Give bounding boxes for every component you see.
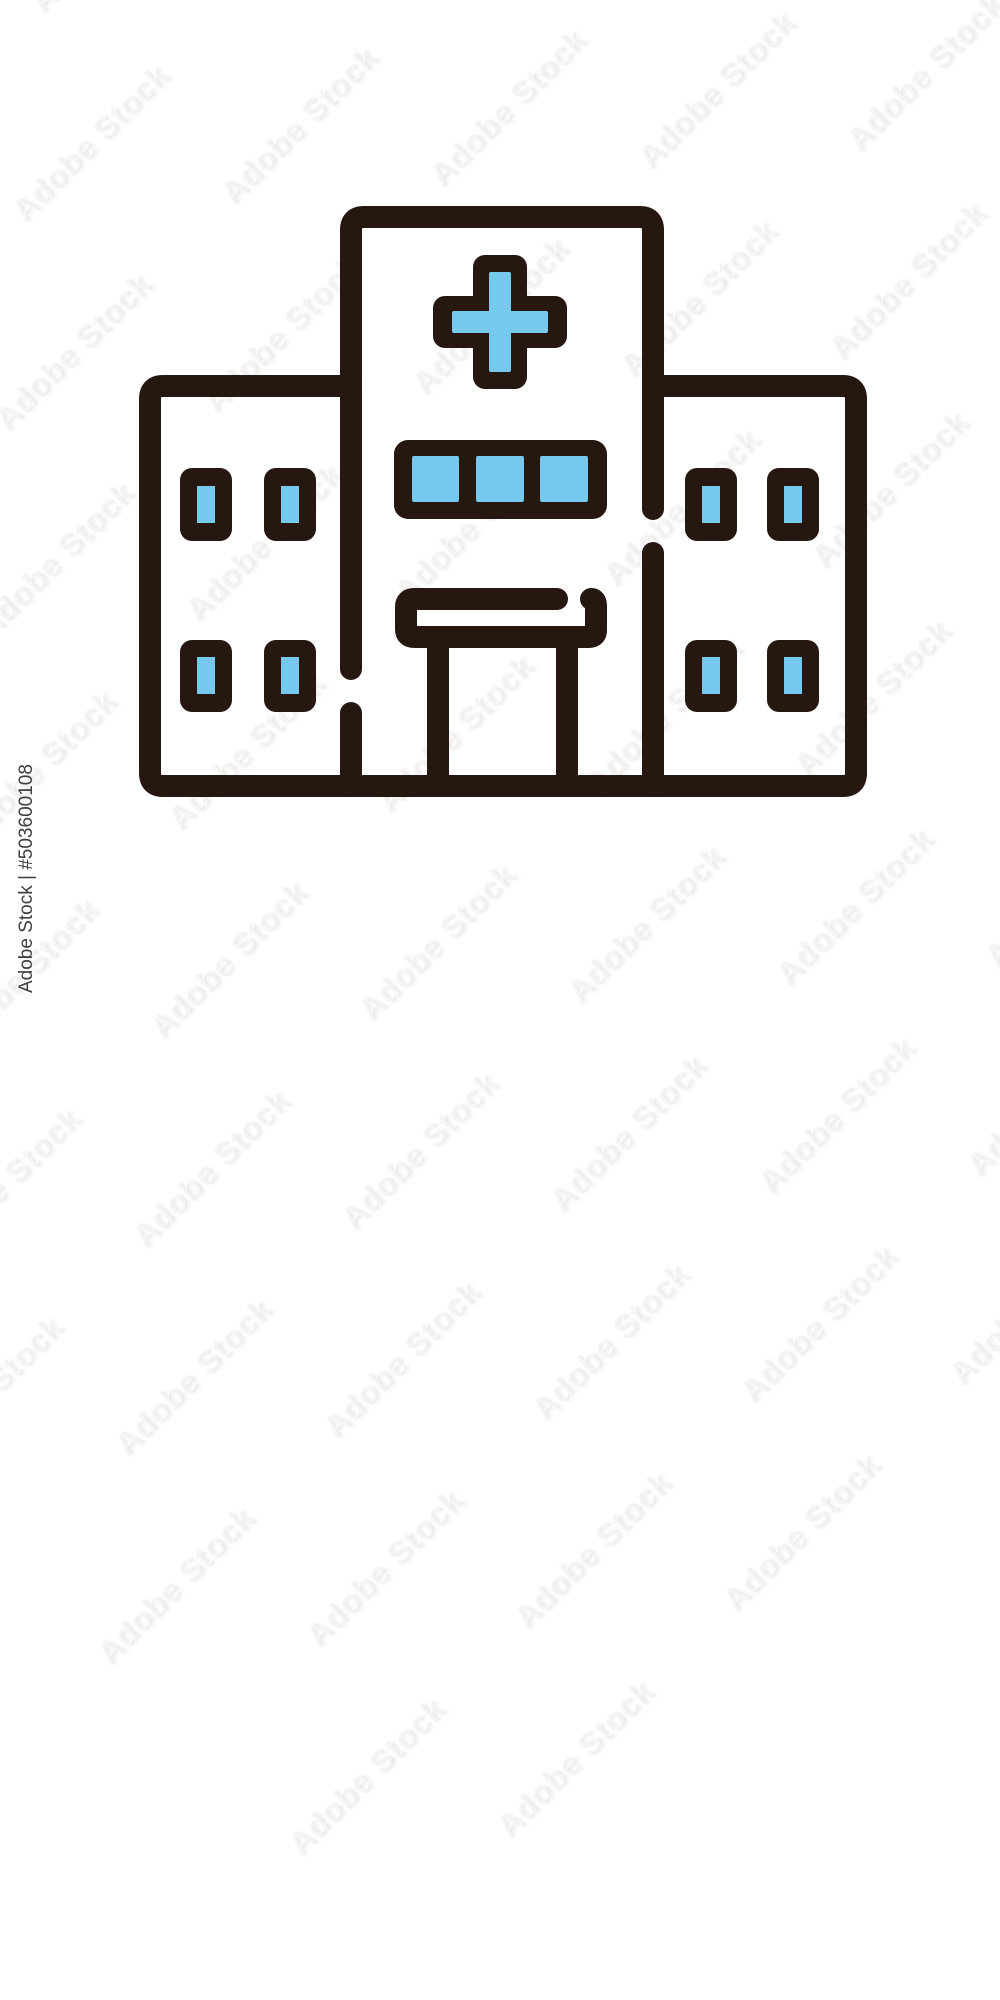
left-window-1-pane — [197, 486, 215, 523]
watermark-tile: Adobe Stock — [0, 1100, 89, 1272]
watermark-tile: Adobe Stock — [0, 1309, 71, 1481]
right-wing-windows — [685, 468, 819, 712]
band-window-3 — [540, 456, 588, 502]
band-window-1 — [412, 456, 459, 502]
hospital-building-icon — [0, 0, 1000, 1000]
left-wing-windows — [180, 468, 316, 712]
watermark-tile: Adobe Stock — [125, 1082, 297, 1254]
entrance-canopy-corner — [591, 599, 596, 630]
watermark-tile: Adobe Stock — [716, 1446, 888, 1618]
left-window-3-pane — [197, 657, 215, 694]
left-wing-outline — [150, 386, 351, 786]
stock-id-watermark: Adobe Stock | #503600108 — [16, 764, 38, 993]
watermark-tile: Adobe Stock — [489, 1673, 661, 1845]
entrance — [406, 599, 596, 780]
right-window-1-pane — [702, 486, 720, 523]
watermark-tile: Adobe Stock — [298, 1482, 470, 1654]
watermark-tile: Adobe Stock — [960, 1012, 1000, 1184]
right-window-4-pane — [784, 657, 802, 694]
right-wing-outline — [653, 386, 856, 786]
center-window-band — [394, 440, 607, 519]
watermark-tile: Adobe Stock — [316, 1273, 488, 1445]
cross-blue-vertical — [489, 272, 511, 372]
watermark-tile: Adobe Stock — [751, 1029, 923, 1201]
watermark-tile: Adobe Stock — [942, 1220, 1000, 1392]
watermark-tile: Adobe Stock — [507, 1464, 679, 1636]
left-window-2-pane — [281, 486, 299, 523]
watermark-tile: Adobe Stock — [525, 1255, 697, 1427]
medical-cross-sign — [433, 255, 567, 389]
watermark-tile: Adobe Stock — [334, 1065, 506, 1237]
watermark-tile: Adobe Stock — [733, 1238, 905, 1410]
band-window-2 — [476, 456, 524, 502]
right-window-3-pane — [702, 657, 720, 694]
left-window-4-pane — [281, 657, 299, 694]
watermark-tile: Adobe Stock — [281, 1690, 453, 1862]
watermark-tile: Adobe Stock — [108, 1291, 280, 1463]
right-window-2-pane — [784, 486, 802, 523]
entrance-canopy — [406, 599, 596, 637]
watermark-tile: Adobe Stock — [542, 1047, 714, 1219]
watermark-tile: Adobe Stock — [90, 1499, 262, 1671]
